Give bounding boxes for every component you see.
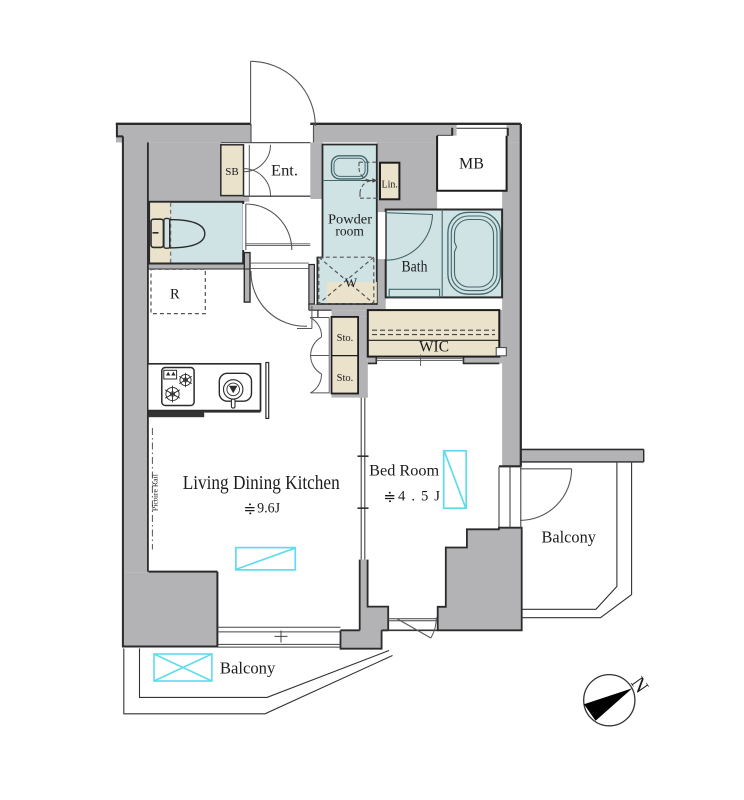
svg-text:Sto.: Sto.	[337, 373, 354, 384]
svg-text:Balcony: Balcony	[542, 527, 597, 546]
svg-text:Sto.: Sto.	[337, 333, 354, 344]
svg-text:SB: SB	[225, 166, 238, 178]
svg-text:9.6J: 9.6J	[257, 501, 280, 517]
svg-text:Picture Rail: Picture Rail	[151, 473, 160, 511]
svg-text:Ent.: Ent.	[271, 163, 298, 180]
svg-text:MB: MB	[459, 156, 484, 173]
svg-text:Bath: Bath	[402, 259, 428, 276]
svg-text:R: R	[170, 286, 180, 302]
svg-text:W: W	[345, 275, 358, 290]
svg-text:room: room	[335, 224, 364, 239]
svg-text:Living Dining Kitchen: Living Dining Kitchen	[183, 472, 340, 494]
svg-text:Balcony: Balcony	[220, 659, 276, 678]
svg-text:Lin.: Lin.	[382, 180, 398, 191]
svg-text:Bed Room: Bed Room	[369, 463, 439, 480]
svg-text:WIC: WIC	[419, 338, 449, 355]
